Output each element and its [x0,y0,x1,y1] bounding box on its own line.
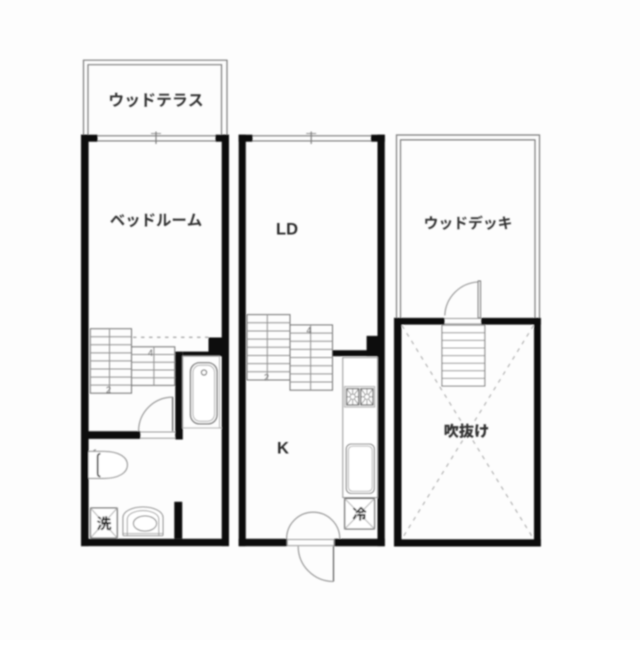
svg-text:LD: LD [276,221,298,239]
svg-text:2: 2 [106,385,111,395]
svg-text:4: 4 [306,326,311,336]
svg-text:K: K [277,440,289,458]
svg-text:4: 4 [148,348,153,358]
svg-text:2: 2 [264,373,269,383]
